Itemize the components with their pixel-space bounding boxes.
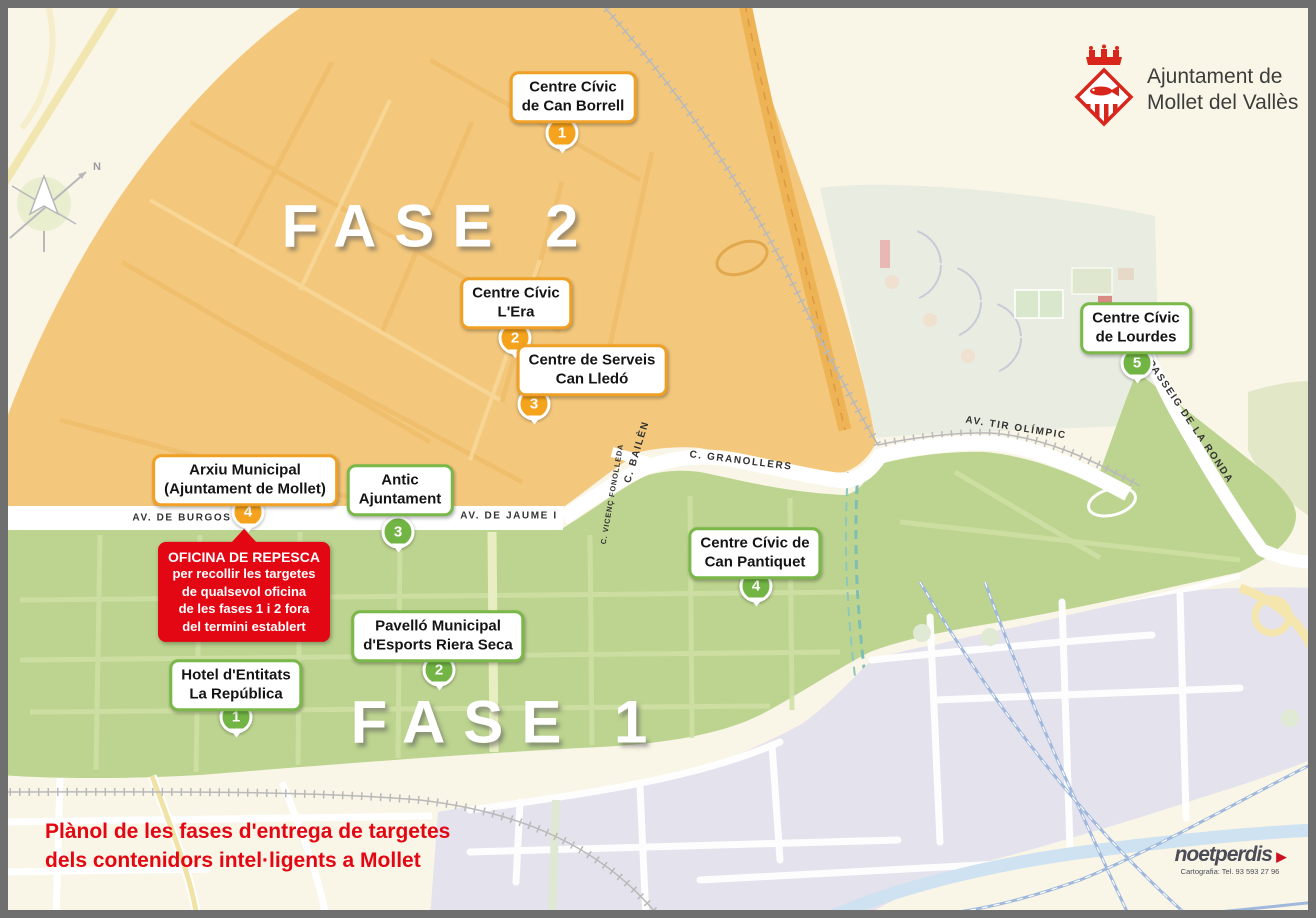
repesca-notice: OFICINA DE REPESCA per recollir les targ… (158, 542, 330, 642)
ajuntament-name: Ajuntament de Mollet del Vallès (1147, 64, 1298, 115)
location-label-hotel-entitats: Hotel d'Entitats La República (169, 659, 302, 711)
location-label-can-lledo: Centre de Serveis Can Lledó (517, 344, 668, 396)
cartographer-logo: noetperdis (1175, 843, 1272, 866)
repesca-text: per recollir les targetes de qualsevol o… (168, 565, 320, 635)
cartography-credit: noetperdis ▶ Cartografia: Tel. 93 593 27… (1150, 843, 1310, 876)
pin-fase1-3: 3 (382, 516, 415, 549)
map-title-line2: dels contenidors intel·ligents a Mollet (45, 847, 450, 876)
ajuntament-crest-icon (1074, 44, 1134, 136)
pin-number: 1 (558, 125, 566, 142)
street-label-jaume: AV. DE JAUME I (460, 511, 557, 522)
pin-number: 4 (244, 504, 252, 521)
map-title-line1: Plànol de les fases d'entrega de targete… (45, 818, 450, 847)
map-page: N FASE 2 FASE 1 AV. DE BURGOS AV. DE JAU… (0, 0, 1316, 918)
map-title: Plànol de les fases d'entrega de targete… (45, 818, 450, 876)
zone-title-fase1: FASE 1 (351, 688, 666, 757)
pin-number: 4 (752, 578, 760, 595)
zone-title-fase2: FASE 2 (282, 192, 597, 261)
compass-north-label: N (93, 161, 101, 173)
street-label-burgos: AV. DE BURGOS (132, 513, 231, 524)
location-label-can-pantiquet: Centre Cívic de Can Pantiquet (688, 527, 821, 579)
location-label-antic-ajuntament: Antic Ajuntament (347, 464, 454, 516)
pin-number: 2 (435, 662, 443, 679)
ajuntament-logo: Ajuntament de Mollet del Vallès (1074, 44, 1298, 136)
location-label-arxiu-municipal: Arxiu Municipal (Ajuntament de Mollet) (152, 454, 338, 506)
location-label-lourdes: Centre Cívic de Lourdes (1080, 302, 1192, 354)
location-label-can-borrell: Centre Cívic de Can Borrell (510, 71, 637, 123)
ajuntament-name-line1: Ajuntament de (1147, 64, 1298, 90)
pin-number: 1 (232, 709, 240, 726)
repesca-title: OFICINA DE REPESCA (168, 549, 320, 565)
ajuntament-name-line2: Mollet del Vallès (1147, 90, 1298, 116)
pin-number: 3 (530, 396, 538, 413)
cartographer-arrow-icon: ▶ (1276, 849, 1285, 864)
cartographer-phone: Cartografia: Tel. 93 593 27 96 (1150, 867, 1310, 876)
pin-number: 2 (511, 330, 519, 347)
pin-number: 3 (394, 524, 402, 541)
location-label-lera: Centre Cívic L'Era (460, 277, 572, 329)
pin-number: 5 (1133, 355, 1141, 372)
location-label-pavello: Pavelló Municipal d'Esports Riera Seca (351, 610, 524, 662)
